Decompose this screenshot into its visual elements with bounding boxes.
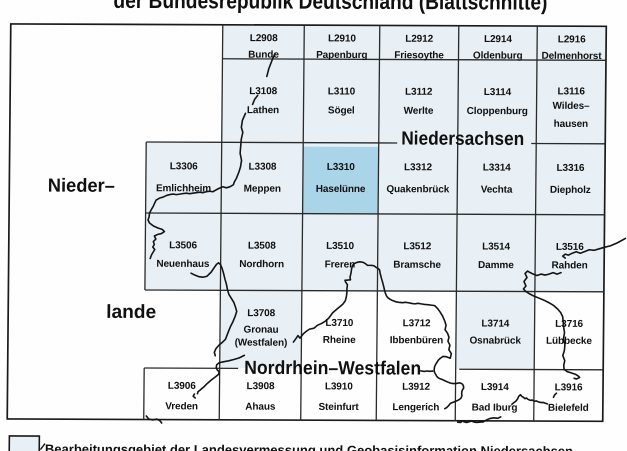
svg-text:L3310: L3310 <box>327 162 355 173</box>
svg-text:L3710: L3710 <box>325 318 353 329</box>
svg-text:Osnabrück: Osnabrück <box>469 335 521 346</box>
svg-text:Ahaus: Ahaus <box>245 402 276 413</box>
svg-text:Neuenhaus: Neuenhaus <box>156 259 210 270</box>
svg-text:L3314: L3314 <box>483 163 511 174</box>
svg-text:L3914: L3914 <box>481 382 509 393</box>
svg-text:Bramsche: Bramsche <box>393 260 441 271</box>
svg-text:hausen: hausen <box>554 119 589 130</box>
svg-text:Wildes–: Wildes– <box>553 101 591 112</box>
svg-text:L3108: L3108 <box>249 86 277 97</box>
svg-text:L3114: L3114 <box>484 87 512 98</box>
svg-text:Rahden: Rahden <box>552 260 588 271</box>
svg-text:Lengerich: Lengerich <box>392 402 439 413</box>
svg-text:Niedersachsen: Niedersachsen <box>401 129 524 150</box>
svg-text:L3908: L3908 <box>247 381 275 392</box>
svg-text:L3308: L3308 <box>249 162 277 173</box>
svg-text:lande: lande <box>106 302 156 323</box>
svg-text:Nordrhein–Westfalen: Nordrhein–Westfalen <box>244 358 421 380</box>
svg-text:L3516: L3516 <box>556 242 584 253</box>
svg-text:L3112: L3112 <box>405 87 433 98</box>
svg-text:Damme: Damme <box>478 260 514 271</box>
svg-text:Sögel: Sögel <box>328 105 355 116</box>
svg-text:L2914: L2914 <box>484 34 512 45</box>
svg-text:Haselünne: Haselünne <box>316 184 366 195</box>
svg-text:Emlichheim: Emlichheim <box>156 183 211 194</box>
svg-text:Vechta: Vechta <box>481 185 513 196</box>
svg-text:L3712: L3712 <box>403 318 431 329</box>
svg-text:Bad Iburg: Bad Iburg <box>472 402 518 413</box>
svg-text:der Bundesrepublik Deutschland: der Bundesrepublik Deutschland (Blattsch… <box>113 0 547 15</box>
svg-text:Nordhorn: Nordhorn <box>239 259 284 270</box>
svg-text:(Westfalen): (Westfalen) <box>235 338 288 349</box>
svg-text:Quakenbrück: Quakenbrück <box>386 184 449 195</box>
svg-text:Gronau: Gronau <box>243 325 278 336</box>
svg-text:L3906: L3906 <box>168 381 196 392</box>
svg-text:Oldenburg: Oldenburg <box>473 50 523 61</box>
svg-text:Meppen: Meppen <box>244 184 281 195</box>
svg-text:Lathen: Lathen <box>247 105 279 116</box>
svg-text:L3116: L3116 <box>557 86 585 97</box>
svg-text:L3912: L3912 <box>402 382 430 393</box>
svg-text:L3714: L3714 <box>481 319 509 330</box>
svg-text:L2912: L2912 <box>405 34 433 45</box>
svg-text:L3514: L3514 <box>482 242 510 253</box>
svg-text:L3312: L3312 <box>404 162 432 173</box>
svg-text:Nieder–: Nieder– <box>48 176 115 197</box>
svg-text:Ibbenbüren: Ibbenbüren <box>390 335 444 346</box>
svg-text:L3916: L3916 <box>555 382 583 393</box>
svg-text:L3316: L3316 <box>557 163 585 174</box>
svg-text:Steinfurt: Steinfurt <box>318 402 359 413</box>
svg-text:Freren: Freren <box>325 259 356 270</box>
svg-text:Bielefeld: Bielefeld <box>548 403 589 414</box>
svg-text:L2908: L2908 <box>250 33 278 44</box>
svg-text:L3708: L3708 <box>247 308 275 319</box>
svg-text:L3506: L3506 <box>169 240 197 251</box>
svg-text:Lübbecke: Lübbecke <box>546 336 593 347</box>
svg-text:Bunde: Bunde <box>248 50 279 61</box>
svg-text:L3508: L3508 <box>248 241 276 252</box>
svg-text:Delmenhorst: Delmenhorst <box>541 51 602 62</box>
svg-text:L3306: L3306 <box>170 161 198 172</box>
svg-text:Bearbeitungsgebiet der Landesv: Bearbeitungsgebiet der Landesvermessung … <box>45 441 573 451</box>
svg-text:Werlte: Werlte <box>404 106 434 117</box>
svg-text:L3110: L3110 <box>328 86 356 97</box>
svg-text:Diepholz: Diepholz <box>550 185 591 196</box>
svg-text:L3510: L3510 <box>326 241 354 252</box>
svg-text:L2910: L2910 <box>328 33 356 44</box>
svg-text:Rheine: Rheine <box>323 335 356 346</box>
svg-text:Vreden: Vreden <box>165 401 198 412</box>
svg-text:Papenburg: Papenburg <box>316 50 367 61</box>
svg-text:L3910: L3910 <box>325 381 353 392</box>
svg-text:L3716: L3716 <box>555 319 583 330</box>
svg-text:Cloppenburg: Cloppenburg <box>467 106 528 117</box>
svg-text:Friesoythe: Friesoythe <box>394 50 444 61</box>
svg-text:L2916: L2916 <box>558 34 586 45</box>
svg-text:L3512: L3512 <box>403 241 431 252</box>
